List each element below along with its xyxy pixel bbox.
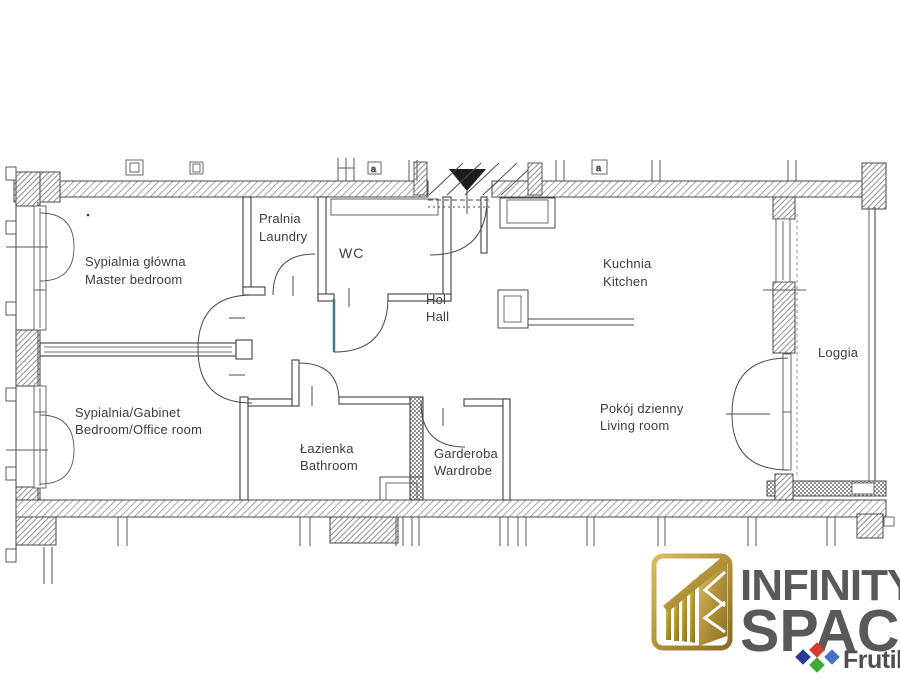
door-wc-arc [334, 297, 388, 352]
label-laundry-en: Laundry [259, 229, 308, 244]
wall-top-left-segment [55, 181, 428, 197]
wall-bottom [16, 500, 886, 517]
floor-plan-svg: a a Sypialnia główna Master bedroom Pral… [0, 0, 900, 675]
wall-top-right-corner [862, 163, 886, 209]
loggia-door-arc-top [732, 358, 788, 414]
kitchen-shaft-box [500, 198, 555, 228]
wall-bottom-right-corner [857, 514, 883, 538]
loggia-structure [726, 207, 875, 481]
label-bathroom-pl: Łazienka [300, 441, 354, 456]
bottom-right-small-box [884, 517, 894, 526]
wall-right-pier-mid [773, 282, 795, 353]
loggia-door-arc-bottom [732, 414, 788, 470]
label-bedroom-office-en: Bedroom/Office room [75, 422, 202, 437]
above-wall-stubs [338, 158, 796, 181]
door-bathroom-arc [299, 363, 339, 401]
label-kitchen-en: Kitchen [603, 274, 648, 289]
wall-master-office-endcap [236, 340, 252, 359]
label-bedroom-office-pl: Sypialnia/Gabinet [75, 405, 180, 420]
wall-wc-left [318, 197, 326, 301]
wall-bathroom-top-left [248, 399, 292, 406]
label-wardrobe-en: Wardrobe [434, 463, 492, 478]
label-living-room-en: Living room [600, 418, 669, 433]
wall-wc-bottom-left [318, 294, 334, 301]
loggia-door-leaf-top [783, 354, 791, 412]
label-hall-pl: Hol [426, 292, 446, 307]
door-laundry-arc [273, 254, 315, 295]
frutils-label: Frutils [843, 646, 900, 674]
entrance-jamb-right [528, 163, 542, 195]
infinity-space-logo: INFINITY SPACE Frutils [654, 556, 900, 674]
left-wall-notches [6, 167, 16, 562]
wall-top-right-segment [492, 181, 886, 197]
marker-box-1 [126, 160, 143, 175]
wall-wardrobe-right [503, 399, 510, 500]
wall-bathroom-corner [292, 360, 299, 406]
wall-right-pier-top [773, 197, 795, 219]
label-wc: WC [339, 245, 364, 261]
wc-niche [331, 199, 438, 215]
wall-hall-stub [481, 197, 487, 253]
label-loggia: Loggia [818, 345, 859, 360]
marker-box-3-label: a [371, 164, 376, 174]
entrance-jamb-left [414, 162, 427, 195]
loggia-corner-detail [852, 483, 874, 494]
label-bathroom-en: Bathroom [300, 458, 358, 473]
wall-master-office [40, 343, 236, 356]
label-laundry-pl: Pralnia [259, 211, 301, 226]
wall-laundry-bottom [243, 287, 265, 295]
wall-bath-wardrobe-divider [410, 397, 423, 500]
label-master-bedroom-pl: Sypialnia główna [85, 254, 186, 269]
label-hall-en: Hall [426, 309, 449, 324]
label-master-bedroom-en: Master bedroom [85, 272, 182, 287]
floor-plan-page: a a Sypialnia główna Master bedroom Pral… [0, 0, 900, 675]
label-living-room-pl: Pokój dzienny [600, 401, 684, 416]
wall-left-pier-2 [16, 330, 40, 386]
wall-wc-right [443, 197, 451, 301]
wall-bottom-stub [330, 517, 398, 543]
marker-box-4-label: a [596, 163, 601, 173]
logo-building-icon [654, 556, 730, 648]
below-wall-stubs [118, 517, 835, 546]
wall-bathroom-top-right [339, 397, 410, 404]
label-kitchen-pl: Kuchnia [603, 256, 652, 271]
label-wardrobe-pl: Garderoba [434, 446, 499, 461]
wall-left-pier-1 [16, 172, 40, 206]
loggia-door-leaf-bottom [783, 412, 791, 470]
plan-dot [87, 214, 90, 217]
wall-right-pier-bottom [775, 474, 793, 500]
wall-bottom-left-corner [16, 517, 56, 545]
wall-master-laundry [243, 197, 251, 293]
wall-bathroom-left [240, 397, 248, 500]
